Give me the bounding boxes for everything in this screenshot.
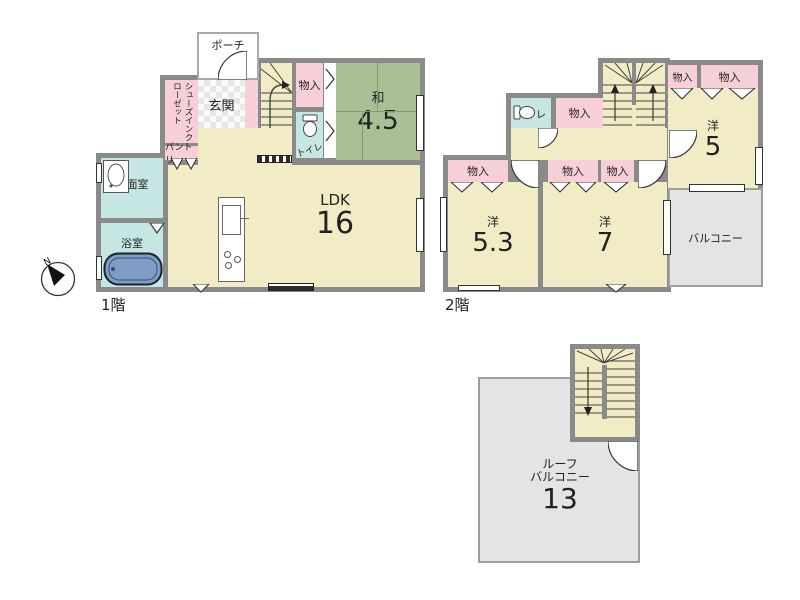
sliding-window — [268, 283, 314, 291]
storage-1f-room: 物入 — [296, 63, 323, 107]
kitchen-sink — [222, 205, 241, 235]
door-arc-icon — [669, 130, 697, 158]
compass-icon: N — [34, 252, 82, 300]
western-room-53: 洋 5.3 — [448, 182, 538, 287]
window — [416, 198, 424, 252]
western-room-7: 洋 7 — [543, 182, 667, 287]
ldk-label-group: LDK 16 — [300, 192, 370, 239]
toilet-icon — [513, 102, 537, 122]
sliding-door — [257, 155, 292, 163]
bifold-door-icon — [149, 223, 165, 234]
shoes-in-closet-label: シューズインクローゼット — [170, 82, 193, 142]
window — [96, 163, 102, 183]
tatami-line — [362, 112, 363, 160]
ldk-size: 16 — [300, 209, 370, 239]
door-arc-icon — [511, 160, 539, 188]
storage-2f-room: 物入 — [556, 98, 603, 128]
bifold-door-icon — [668, 88, 758, 100]
ldk-room — [168, 165, 420, 287]
stove-burner-icon — [224, 251, 231, 258]
door-arc-icon — [638, 160, 666, 188]
door-notch-icon — [605, 284, 627, 293]
tatami-line — [377, 63, 378, 111]
storage-2f-room: 物入 — [601, 160, 634, 182]
storage-label: 物入 — [299, 77, 321, 93]
bathtub-icon — [103, 252, 163, 286]
window — [663, 200, 671, 255]
floor2-label: 2階 — [445, 297, 470, 314]
shoes-in-closet-room: シューズインクローゼット — [165, 80, 198, 143]
window — [689, 184, 745, 192]
kitchen-faucet — [241, 218, 249, 219]
bifold-door-icon — [548, 182, 634, 193]
window — [458, 285, 500, 291]
window — [440, 197, 447, 252]
balcony-label: バルコニー — [688, 230, 743, 246]
door-arc-icon — [538, 128, 558, 148]
bifold-door-icon — [448, 182, 508, 193]
stairs-icon — [603, 63, 665, 129]
storage-label: 物入 — [607, 163, 629, 179]
window — [96, 256, 102, 280]
stove-burner-icon — [234, 256, 241, 263]
toilet-icon — [300, 114, 320, 138]
window — [755, 147, 763, 185]
western-room-53-size: 5.3 — [472, 230, 513, 256]
window — [416, 95, 424, 151]
bathroom-label: 浴室 — [121, 235, 143, 251]
door-notch-icon — [192, 284, 210, 293]
door-arc-icon — [608, 441, 638, 471]
western-room-5-size: 5 — [705, 134, 722, 160]
storage-label: 物入 — [569, 105, 591, 121]
roof-balcony-size: 13 — [495, 484, 625, 513]
toilet-1f-label: トイレ — [295, 139, 325, 160]
storage-label: 物入 — [562, 163, 584, 179]
genkan-room: 玄関 — [198, 80, 245, 128]
balcony-room: バルコニー — [668, 188, 763, 287]
stairs-icon — [575, 349, 635, 437]
door-arc-icon — [218, 51, 247, 80]
genkan-label: 玄関 — [208, 95, 234, 114]
chevron-door-icon — [324, 63, 336, 158]
western-room-7-size: 7 — [597, 230, 614, 256]
storage-2f-room: 物入 — [701, 65, 758, 88]
floor1-label: 1階 — [101, 297, 126, 314]
western-room-5-name: 洋 — [707, 117, 719, 134]
floor-plan: N ポーチ シューズインクローゼット パントリー 玄関 物入 — [0, 0, 800, 600]
storage-2f-room: 物入 — [548, 160, 598, 182]
storage-2f-room: 物入 — [448, 160, 508, 182]
stove-burner-icon — [225, 262, 232, 269]
tatami-line — [336, 111, 420, 112]
hall-2f — [511, 128, 667, 160]
storage-label: 物入 — [467, 163, 489, 179]
roof-balcony-label-group: ルーフ バルコニー 13 — [495, 458, 625, 514]
storage-label: 物入 — [673, 69, 693, 84]
storage-2f-room: 物入 — [668, 65, 697, 88]
storage-label: 物入 — [719, 69, 741, 85]
bifold-door-icon — [170, 158, 198, 171]
sink-icon — [105, 162, 127, 191]
genkan-step — [245, 80, 258, 128]
